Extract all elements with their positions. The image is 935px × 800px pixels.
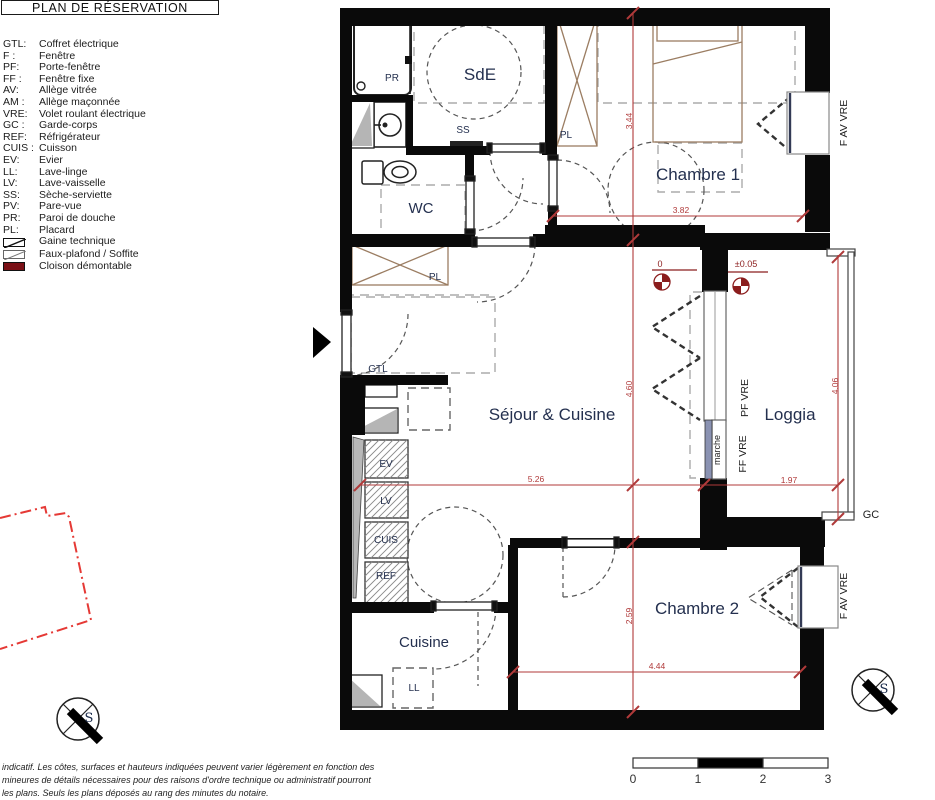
room-label-wc: WC [409, 200, 434, 217]
label-f-av-vre-chambre1: F AV VRE [838, 100, 850, 147]
dim-loggia-w: 1.97 [781, 475, 798, 485]
label-lv: LV [380, 496, 392, 507]
entrance-arrow-icon [313, 327, 331, 358]
label-ff-vre: FF VRE [737, 435, 749, 472]
compass-south-label: S [880, 682, 889, 697]
compass-right: S [852, 669, 895, 712]
label-ss: SS [456, 125, 470, 136]
window-pf-loggia [704, 291, 726, 421]
label-pl-chambre1: PL [560, 130, 573, 141]
scale-bar: 0 1 2 3 [630, 758, 832, 786]
toilet [362, 161, 416, 184]
label-ll: LL [408, 683, 420, 694]
level-zero: 0 [657, 259, 662, 269]
room-label-sejour: Séjour & Cuisine [489, 405, 616, 424]
dimension-labels: 3.44 3.82 4.60 4.06 5.26 1.97 2.59 4.44 [528, 112, 840, 671]
dim-chambre2-h: 2.59 [624, 607, 634, 624]
marche-step [705, 420, 712, 479]
dim-sejour-w: 5.26 [528, 474, 545, 484]
label-marche: marche [712, 435, 722, 465]
label-gc: GC [863, 509, 880, 521]
floor-plan-page: PLAN DE RÉSERVATION GTL:Coffret électriq… [0, 0, 935, 800]
room-label-loggia: Loggia [764, 405, 816, 424]
window-chambre1 [787, 92, 829, 154]
label-pl-hall: PL [429, 272, 442, 283]
dim-chambre1-h: 3.44 [624, 112, 634, 129]
label-f-av-vre-chambre2: F AV VRE [838, 573, 850, 620]
label-ev: EV [379, 459, 393, 470]
room-label-sde: SdE [464, 65, 496, 84]
dim-chambre1-w: 3.82 [673, 205, 690, 215]
door-chambre1 [548, 155, 558, 211]
scale-1: 1 [695, 772, 702, 786]
dim-loggia-h: 4.06 [830, 377, 840, 394]
floor-plan-drawing: 3.44 3.82 4.60 4.06 5.26 1.97 2.59 4.44 … [0, 0, 935, 800]
door-entry [341, 310, 352, 377]
scale-2: 2 [760, 772, 767, 786]
walls [340, 8, 830, 730]
bed [653, 20, 742, 142]
scale-3: 3 [825, 772, 832, 786]
label-ref: REF [376, 571, 396, 582]
door-sejour [472, 237, 535, 247]
table [408, 388, 450, 430]
shower-drain [357, 82, 365, 90]
lot-boundary [0, 507, 91, 649]
label-pr: PR [385, 73, 399, 84]
scale-0: 0 [630, 772, 637, 786]
label-pf-vre: PF VRE [739, 379, 751, 417]
door-chambre2 [562, 537, 619, 548]
compass-left: S [57, 698, 100, 741]
dim-chambre2-w: 4.44 [649, 661, 666, 671]
pare-vue-wedge [353, 437, 364, 598]
dim-sejour-h: 4.60 [624, 380, 634, 397]
door-sde [487, 143, 545, 153]
door-wc [465, 176, 475, 234]
room-label-cuisine: Cuisine [399, 634, 449, 651]
label-gtl: GTL [368, 364, 388, 375]
label-cuis: CUIS [374, 535, 398, 546]
window-opening-thin-dashes [748, 570, 792, 625]
room-label-chambre2: Chambre 2 [655, 599, 739, 618]
level-loggia: ±0.05 [735, 259, 757, 269]
compass-south-label: S [85, 711, 94, 726]
room-label-chambre1: Chambre 1 [656, 165, 740, 184]
door-cuisine [431, 601, 497, 611]
window-chambre2 [798, 566, 838, 628]
placard-chambre1 [557, 15, 597, 146]
